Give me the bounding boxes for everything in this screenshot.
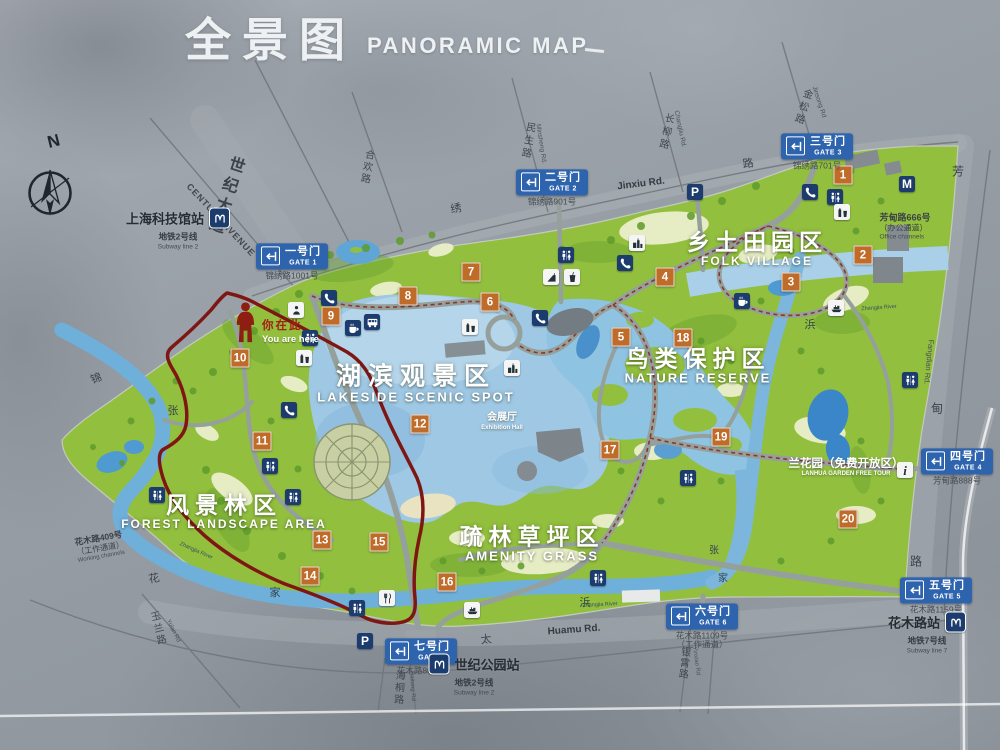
gate-sign-text: 五号门GATE 5 [929, 580, 965, 600]
gate-sign-panel: 二号门GATE 2 [516, 169, 588, 195]
gate-sign-panel: 五号门GATE 5 [900, 577, 972, 603]
metro-station-世纪公园站: 世纪公园站地铁2号线Subway line 2 [428, 654, 519, 697]
road-label: 绣 [449, 199, 463, 217]
panoramic-map-board: 全景图 PANORAMIC MAP [0, 0, 1000, 750]
poi-marker-11: 11 [253, 432, 272, 451]
exhibition-hall-note: 会展厅Exhibition Hall [481, 412, 523, 432]
region-label-zh: 湖滨观景区 [317, 363, 514, 389]
you-are-here-person-icon [233, 302, 258, 349]
coffee-icon [734, 293, 750, 309]
bus-icon [364, 314, 380, 330]
gate-name-en: GATE 1 [289, 259, 317, 266]
station-name: 世纪公园站 [454, 655, 519, 674]
region-label: 湖滨观景区LAKESIDE SCENIC SPOT [317, 363, 514, 404]
region-label-zh: 乡土田园区 [687, 230, 827, 254]
gate-address: 花木路1109号（工作通道） [666, 631, 738, 651]
station-line-zh: 地铁2号线 [428, 677, 519, 689]
restaurant-icon [379, 590, 395, 606]
phone-icon [321, 290, 337, 306]
poi-marker-10: 10 [231, 349, 250, 368]
station-line-zh: 地铁7号线 [888, 635, 966, 647]
gate-enter-arrow-icon [786, 137, 805, 156]
metro-station-上海科技馆站: 上海科技馆站地铁2号线Subway line 2 [126, 208, 230, 251]
note-line: Office channels [879, 234, 930, 242]
road-label: 甸 [931, 400, 943, 417]
region-label-en: FOLK VILLAGE [687, 254, 827, 268]
gate-sign-gate-2: 二号门GATE 2锦绣路901号 [516, 169, 588, 206]
road-label: 长柳路 [654, 111, 677, 152]
vending-icon [462, 319, 478, 335]
road-label: Jinxiu Rd. [617, 176, 666, 193]
boat-icon [464, 602, 480, 618]
phone-icon [281, 402, 297, 418]
gate-name-zh: 四号门 [950, 451, 986, 462]
station-line-en: Subway line 2 [428, 690, 519, 697]
gate-sign-text: 六号门GATE 6 [695, 606, 731, 626]
gate-sign-gate-1: 一号门GATE 1锦绣路1001号 [256, 243, 328, 280]
poi-marker-7: 7 [462, 263, 481, 282]
gate-sign-panel: 三号门GATE 3 [781, 133, 853, 159]
road-label: 家 [270, 584, 281, 600]
you-are-here: 你在此 You are here [233, 302, 319, 349]
poi-marker-8: 8 [399, 287, 418, 306]
restroom-icon [285, 489, 301, 505]
poi-marker-14: 14 [301, 567, 320, 586]
restroom-icon [558, 247, 574, 263]
gate-sign-gate-3: 三号门GATE 3锦绣路701号 [781, 133, 853, 170]
vending-icon [296, 350, 312, 366]
gate-enter-arrow-icon [905, 581, 924, 600]
metro-logo-icon [209, 208, 230, 229]
poi-marker-18: 18 [674, 329, 693, 348]
restroom-icon [590, 570, 606, 586]
road-label: 张 [709, 542, 719, 557]
region-label-en: LAKESIDE SCENIC SPOT [317, 390, 514, 405]
road-label: Minsheng Rd. [534, 124, 547, 165]
gate-enter-arrow-icon [390, 642, 409, 661]
office-channel-note: 芳甸路666号（办公通道）Office channels [879, 212, 930, 241]
poi-marker-3: 3 [782, 273, 801, 292]
map-overlay: 你在此 You are here 乡土田园区FOLK VILLAGE鸟类保护区N… [0, 0, 1000, 750]
gate-sign-gate-5: 五号门GATE 5花木路1159号 [900, 577, 972, 614]
gate-address: 芳甸路888号 [921, 476, 993, 486]
building-icon [629, 235, 645, 251]
poi-marker-13: 13 [313, 531, 332, 550]
restroom-icon [262, 458, 278, 474]
road-label: Changliu Rd. [673, 110, 688, 148]
boat-icon [828, 300, 844, 316]
station-row: 世纪公园站 [428, 654, 519, 675]
road-label: 路 [910, 553, 922, 570]
road-label: 家 [718, 570, 728, 585]
metro-station-花木路站: 花木路站地铁7号线Subway line 7 [888, 612, 966, 655]
vending-icon [834, 204, 850, 220]
region-label: 鸟类保护区NATURE RESERVE [625, 346, 772, 385]
parking-icon: P [687, 184, 703, 200]
coffee-icon [345, 320, 361, 336]
gate-name-zh: 六号门 [695, 606, 731, 617]
road-label: 芳 [952, 163, 964, 180]
road-label: Fangdian Rd. [922, 339, 936, 385]
road-label: Zhangjia River [179, 541, 214, 561]
station-line-zh: 地铁2号线 [126, 231, 230, 243]
gate-sign-panel: 六号门GATE 6 [666, 603, 738, 629]
gate-address: 锦绣路1001号 [256, 271, 328, 281]
phone-icon [617, 255, 633, 271]
region-label-en: FOREST LANDSCAPE AREA [121, 517, 327, 531]
poi-marker-20: 20 [839, 510, 858, 529]
restroom-icon [349, 600, 365, 616]
working-channel-note: 花木路409号（工作通道）Working channels [74, 529, 126, 565]
restroom-icon [827, 189, 843, 205]
gate-name-zh: 三号门 [810, 136, 846, 147]
region-label-en: AMENITY GRASS [460, 549, 605, 564]
gate-sign-text: 二号门GATE 2 [545, 172, 581, 192]
you-are-here-label-en: You are here [262, 334, 319, 345]
gate-name-en: GATE 5 [933, 593, 961, 600]
poi-marker-9: 9 [322, 307, 341, 326]
road-label: 合欢路 [355, 148, 376, 186]
drink-icon [564, 269, 580, 285]
road-label: Huamu Rd. [547, 623, 600, 638]
gate-enter-arrow-icon [261, 247, 280, 266]
gate-sign-panel: 四号门GATE 4 [921, 448, 993, 474]
region-label-zh: 鸟类保护区 [625, 346, 772, 370]
station-row: 上海科技馆站 [126, 208, 230, 229]
station-name: 上海科技馆站 [126, 209, 204, 228]
you-are-here-label-zh: 你在此 [262, 317, 319, 333]
gate-sign-gate-6: 六号门GATE 6花木路1109号（工作通道） [666, 603, 738, 650]
note-line: 芳甸路666号 [879, 212, 930, 223]
road-label: 张 [168, 402, 179, 418]
restroom-icon [149, 487, 165, 503]
playground-icon [543, 269, 559, 285]
building-icon [504, 360, 520, 376]
note-line: LANHUA GARDEN FREE TOUR [789, 471, 904, 479]
poi-marker-12: 12 [411, 415, 430, 434]
gate-name-zh: 二号门 [545, 172, 581, 183]
metro-logo-icon [945, 612, 966, 633]
gate-enter-arrow-icon [671, 607, 690, 626]
road-label: 锦 [88, 369, 104, 388]
road-label: 太 [480, 630, 493, 647]
gate-name-en: GATE 6 [699, 619, 727, 626]
metro-logo-icon [428, 654, 449, 675]
note-line: （办公通道） [879, 224, 930, 234]
gate-enter-arrow-icon [521, 173, 540, 192]
gate-name-zh: 一号门 [285, 246, 321, 257]
region-label: 疏林草坪区AMENITY GRASS [460, 524, 605, 563]
gate-sign-panel: 一号门GATE 1 [256, 243, 328, 269]
station-row: 花木路站 [888, 612, 966, 633]
poi-marker-5: 5 [612, 328, 631, 347]
road-label: 路 [741, 154, 754, 171]
note-line: 兰花园（免费开放区） [789, 457, 904, 471]
station-name: 花木路站 [888, 613, 940, 632]
note-line: Exhibition Hall [481, 425, 523, 433]
road-label: 玉兰路 [145, 610, 168, 649]
gate-address: 锦绣路901号 [516, 197, 588, 207]
restroom-icon [680, 470, 696, 486]
road-label: 银霄路 [674, 646, 692, 680]
gate-name-en: GATE 2 [549, 185, 577, 192]
gate-name-zh: 五号门 [929, 580, 965, 591]
restroom-icon [902, 372, 918, 388]
poi-marker-6: 6 [481, 293, 500, 312]
region-label: 乡土田园区FOLK VILLAGE [687, 230, 827, 268]
gate-address: 锦绣路701号 [781, 161, 853, 171]
lanhua-garden-note: 兰花园（免费开放区）LANHUA GARDEN FREE TOUR [789, 457, 904, 479]
region-label-en: NATURE RESERVE [625, 371, 772, 386]
road-label: Jinsong Rd [811, 85, 828, 118]
parking-icon: P [357, 633, 373, 649]
poi-marker-17: 17 [601, 441, 620, 460]
info-icon: i [897, 462, 913, 478]
road-label: Yinxiao Rd [691, 646, 701, 675]
region-label-zh: 疏林草坪区 [460, 524, 605, 548]
gate-sign-text: 四号门GATE 4 [950, 451, 986, 471]
poi-marker-15: 15 [370, 533, 389, 552]
metroM-icon: M [899, 176, 915, 192]
poi-marker-2: 2 [854, 246, 873, 265]
road-label: Zhangjia River [861, 304, 897, 312]
note-line: 会展厅 [481, 412, 523, 425]
poi-marker-4: 4 [656, 268, 675, 287]
poi-marker-16: 16 [438, 573, 457, 592]
gate-sign-gate-4: 四号门GATE 4芳甸路888号 [921, 448, 993, 485]
road-label: 浜 [805, 316, 816, 332]
road-label: 花 [147, 569, 161, 587]
gate-enter-arrow-icon [926, 452, 945, 471]
poi-marker-19: 19 [712, 428, 731, 447]
station-line-en: Subway line 2 [126, 244, 230, 251]
phone-icon [802, 184, 818, 200]
gate-name-zh: 七号门 [414, 641, 450, 652]
gate-sign-text: 一号门GATE 1 [285, 246, 321, 266]
gate-sign-text: 三号门GATE 3 [810, 136, 846, 156]
station-line-en: Subway line 7 [888, 648, 966, 655]
road-label: Zhangjia River [582, 601, 618, 609]
gate-name-en: GATE 4 [954, 464, 982, 471]
gate-name-en: GATE 3 [814, 149, 842, 156]
phone-icon [532, 310, 548, 326]
